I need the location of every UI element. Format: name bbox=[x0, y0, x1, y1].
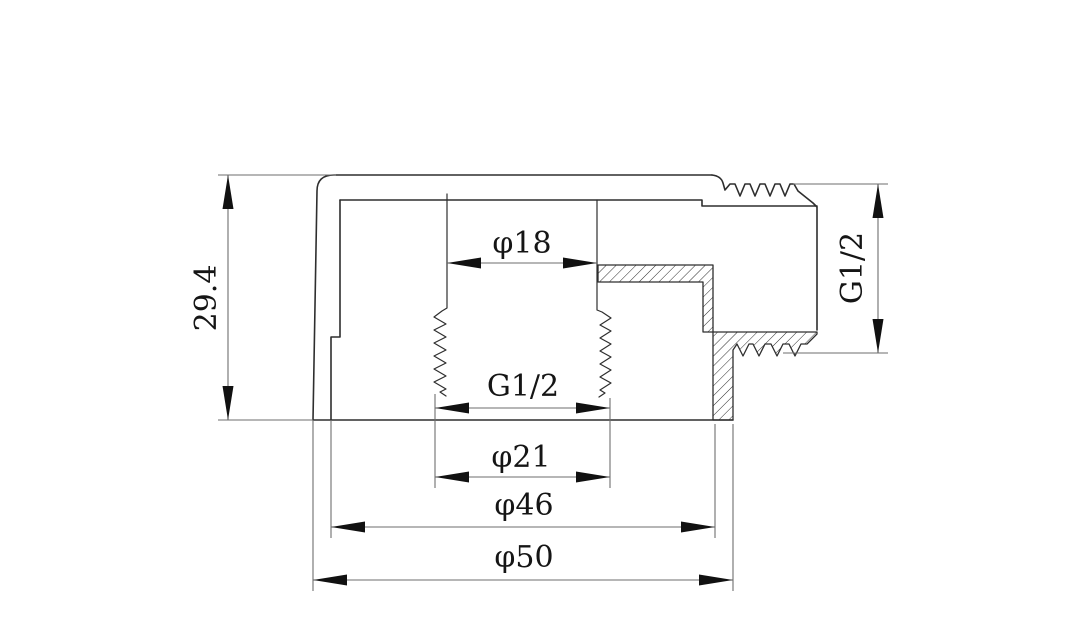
dimension-thread-dia: φ21 bbox=[435, 440, 610, 483]
female-thread-left bbox=[434, 194, 447, 396]
arrowhead-left bbox=[435, 472, 469, 483]
dimension-inner-dia: φ46 bbox=[331, 420, 715, 538]
arrowhead-right bbox=[563, 258, 597, 269]
arrowhead-left bbox=[435, 403, 469, 414]
arrowhead-up bbox=[223, 175, 234, 209]
female-thread-right bbox=[597, 200, 611, 397]
dimension-bore-dia: φ18 bbox=[447, 226, 597, 269]
dim-label-male-thread: G1/2 bbox=[835, 232, 870, 304]
section-hatch bbox=[598, 265, 817, 420]
arrowhead-right bbox=[699, 575, 733, 586]
dim-label-thread-dia: φ21 bbox=[491, 440, 550, 475]
arrowhead-down bbox=[873, 319, 884, 353]
arrowhead-up bbox=[873, 184, 884, 218]
drawing-canvas: 29.4 φ18 G1/2 φ21 bbox=[0, 0, 1081, 643]
dimension-male-thread: G1/2 bbox=[783, 184, 888, 353]
arrowhead-down bbox=[223, 386, 234, 420]
technical-drawing: 29.4 φ18 G1/2 φ21 bbox=[0, 0, 1081, 643]
dim-label-inner-dia: φ46 bbox=[494, 488, 553, 523]
arrowhead-left bbox=[313, 575, 347, 586]
part-geometry bbox=[313, 175, 817, 420]
dim-label-outer-dia: φ50 bbox=[494, 540, 553, 575]
dim-label-bore-dia: φ18 bbox=[492, 226, 551, 261]
dim-label-female-thread: G1/2 bbox=[487, 369, 559, 404]
arrowhead-left bbox=[331, 522, 365, 533]
inner-ceiling bbox=[340, 200, 817, 206]
arrowhead-left bbox=[447, 258, 481, 269]
dim-label-height: 29.4 bbox=[189, 265, 224, 332]
arrowhead-right bbox=[576, 472, 610, 483]
arrowhead-right bbox=[576, 403, 610, 414]
inner-wall-left bbox=[331, 200, 340, 420]
arrowhead-right bbox=[681, 522, 715, 533]
male-thread-top-profile bbox=[712, 175, 817, 330]
